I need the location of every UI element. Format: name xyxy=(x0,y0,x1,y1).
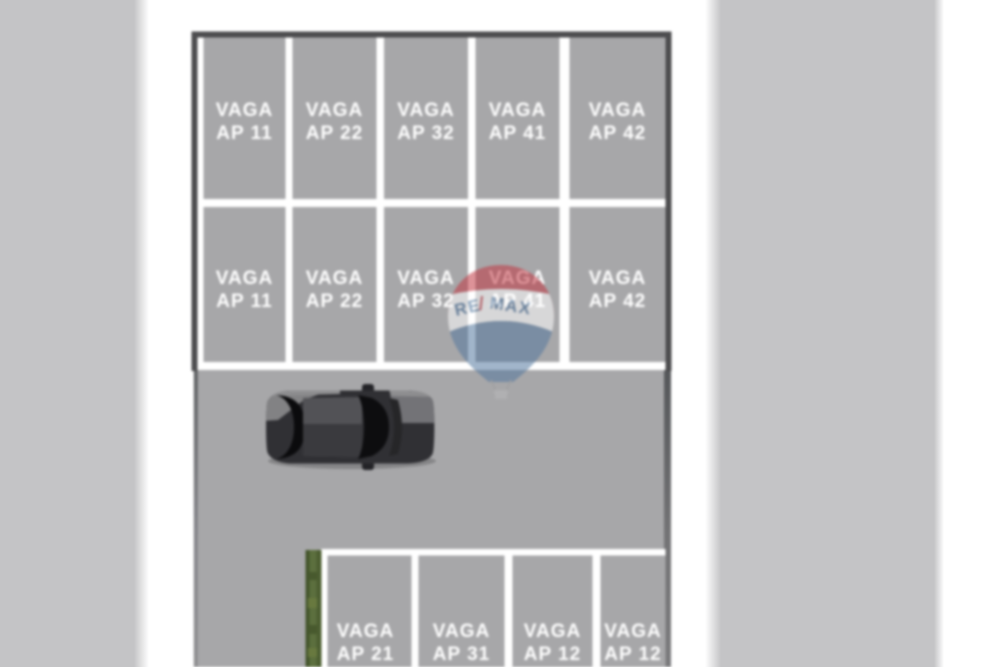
svg-text:AP 21: AP 21 xyxy=(337,644,394,665)
svg-text:VAGA: VAGA xyxy=(589,100,646,121)
svg-text:VAGA: VAGA xyxy=(216,100,273,121)
svg-text:VAGA: VAGA xyxy=(216,268,273,289)
svg-text:AP 42: AP 42 xyxy=(589,291,646,312)
svg-text:VAGA: VAGA xyxy=(397,100,454,121)
svg-text:VAGA: VAGA xyxy=(589,268,646,289)
svg-text:VAGA: VAGA xyxy=(397,268,454,289)
svg-text:AP 12: AP 12 xyxy=(524,644,581,665)
svg-text:AP 31: AP 31 xyxy=(433,644,490,665)
svg-text:VAGA: VAGA xyxy=(524,621,581,642)
svg-text:VAGA: VAGA xyxy=(306,268,363,289)
svg-text:AP 11: AP 11 xyxy=(216,123,272,144)
svg-text:AP 12: AP 12 xyxy=(604,644,661,665)
svg-text:VAGA: VAGA xyxy=(306,100,363,121)
svg-text:AP 32: AP 32 xyxy=(397,291,454,312)
svg-text:VAGA: VAGA xyxy=(433,621,490,642)
svg-text:AP 42: AP 42 xyxy=(589,123,646,144)
svg-text:VAGA: VAGA xyxy=(489,100,546,121)
svg-text:VAGA: VAGA xyxy=(337,621,394,642)
svg-text:AP 22: AP 22 xyxy=(306,123,363,144)
svg-text:AP 41: AP 41 xyxy=(489,123,546,144)
svg-text:AP 32: AP 32 xyxy=(397,123,454,144)
svg-text:VAGA: VAGA xyxy=(604,621,661,642)
svg-text:AP 22: AP 22 xyxy=(306,291,363,312)
svg-text:AP 11: AP 11 xyxy=(216,291,272,312)
